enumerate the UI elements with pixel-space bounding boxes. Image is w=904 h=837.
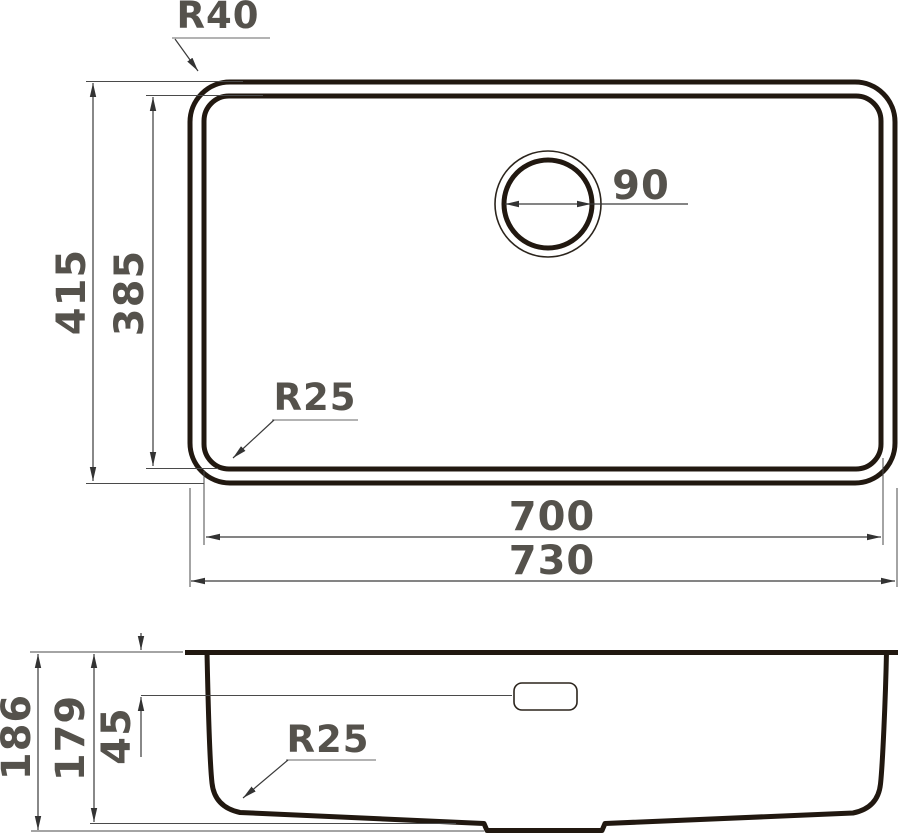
dim-label-bottom-corner-radius: R25 [258,719,398,759]
dim-label-inner-corner-radius: R25 [245,377,385,417]
sink-technical-drawing: R40 90 R25 415 385 700 730 186 179 45 R2… [0,0,904,837]
dim-label-drain-diameter: 90 [591,166,691,206]
dim-label-total-depth: 186 [0,667,37,807]
overflow-hole-outline [514,683,577,710]
dim-label-outer-corner-radius: R40 [158,0,278,33]
dim-label-outer-length: 415 [52,222,92,362]
dim-label-outer-width: 730 [472,541,632,581]
dim-label-bowl-depth: 179 [51,668,91,808]
top-view-outline [190,82,895,483]
dim-label-overflow-offset: 45 [97,666,137,806]
dim-label-inner-width: 700 [472,497,632,537]
dim-label-inner-length: 385 [110,223,150,363]
